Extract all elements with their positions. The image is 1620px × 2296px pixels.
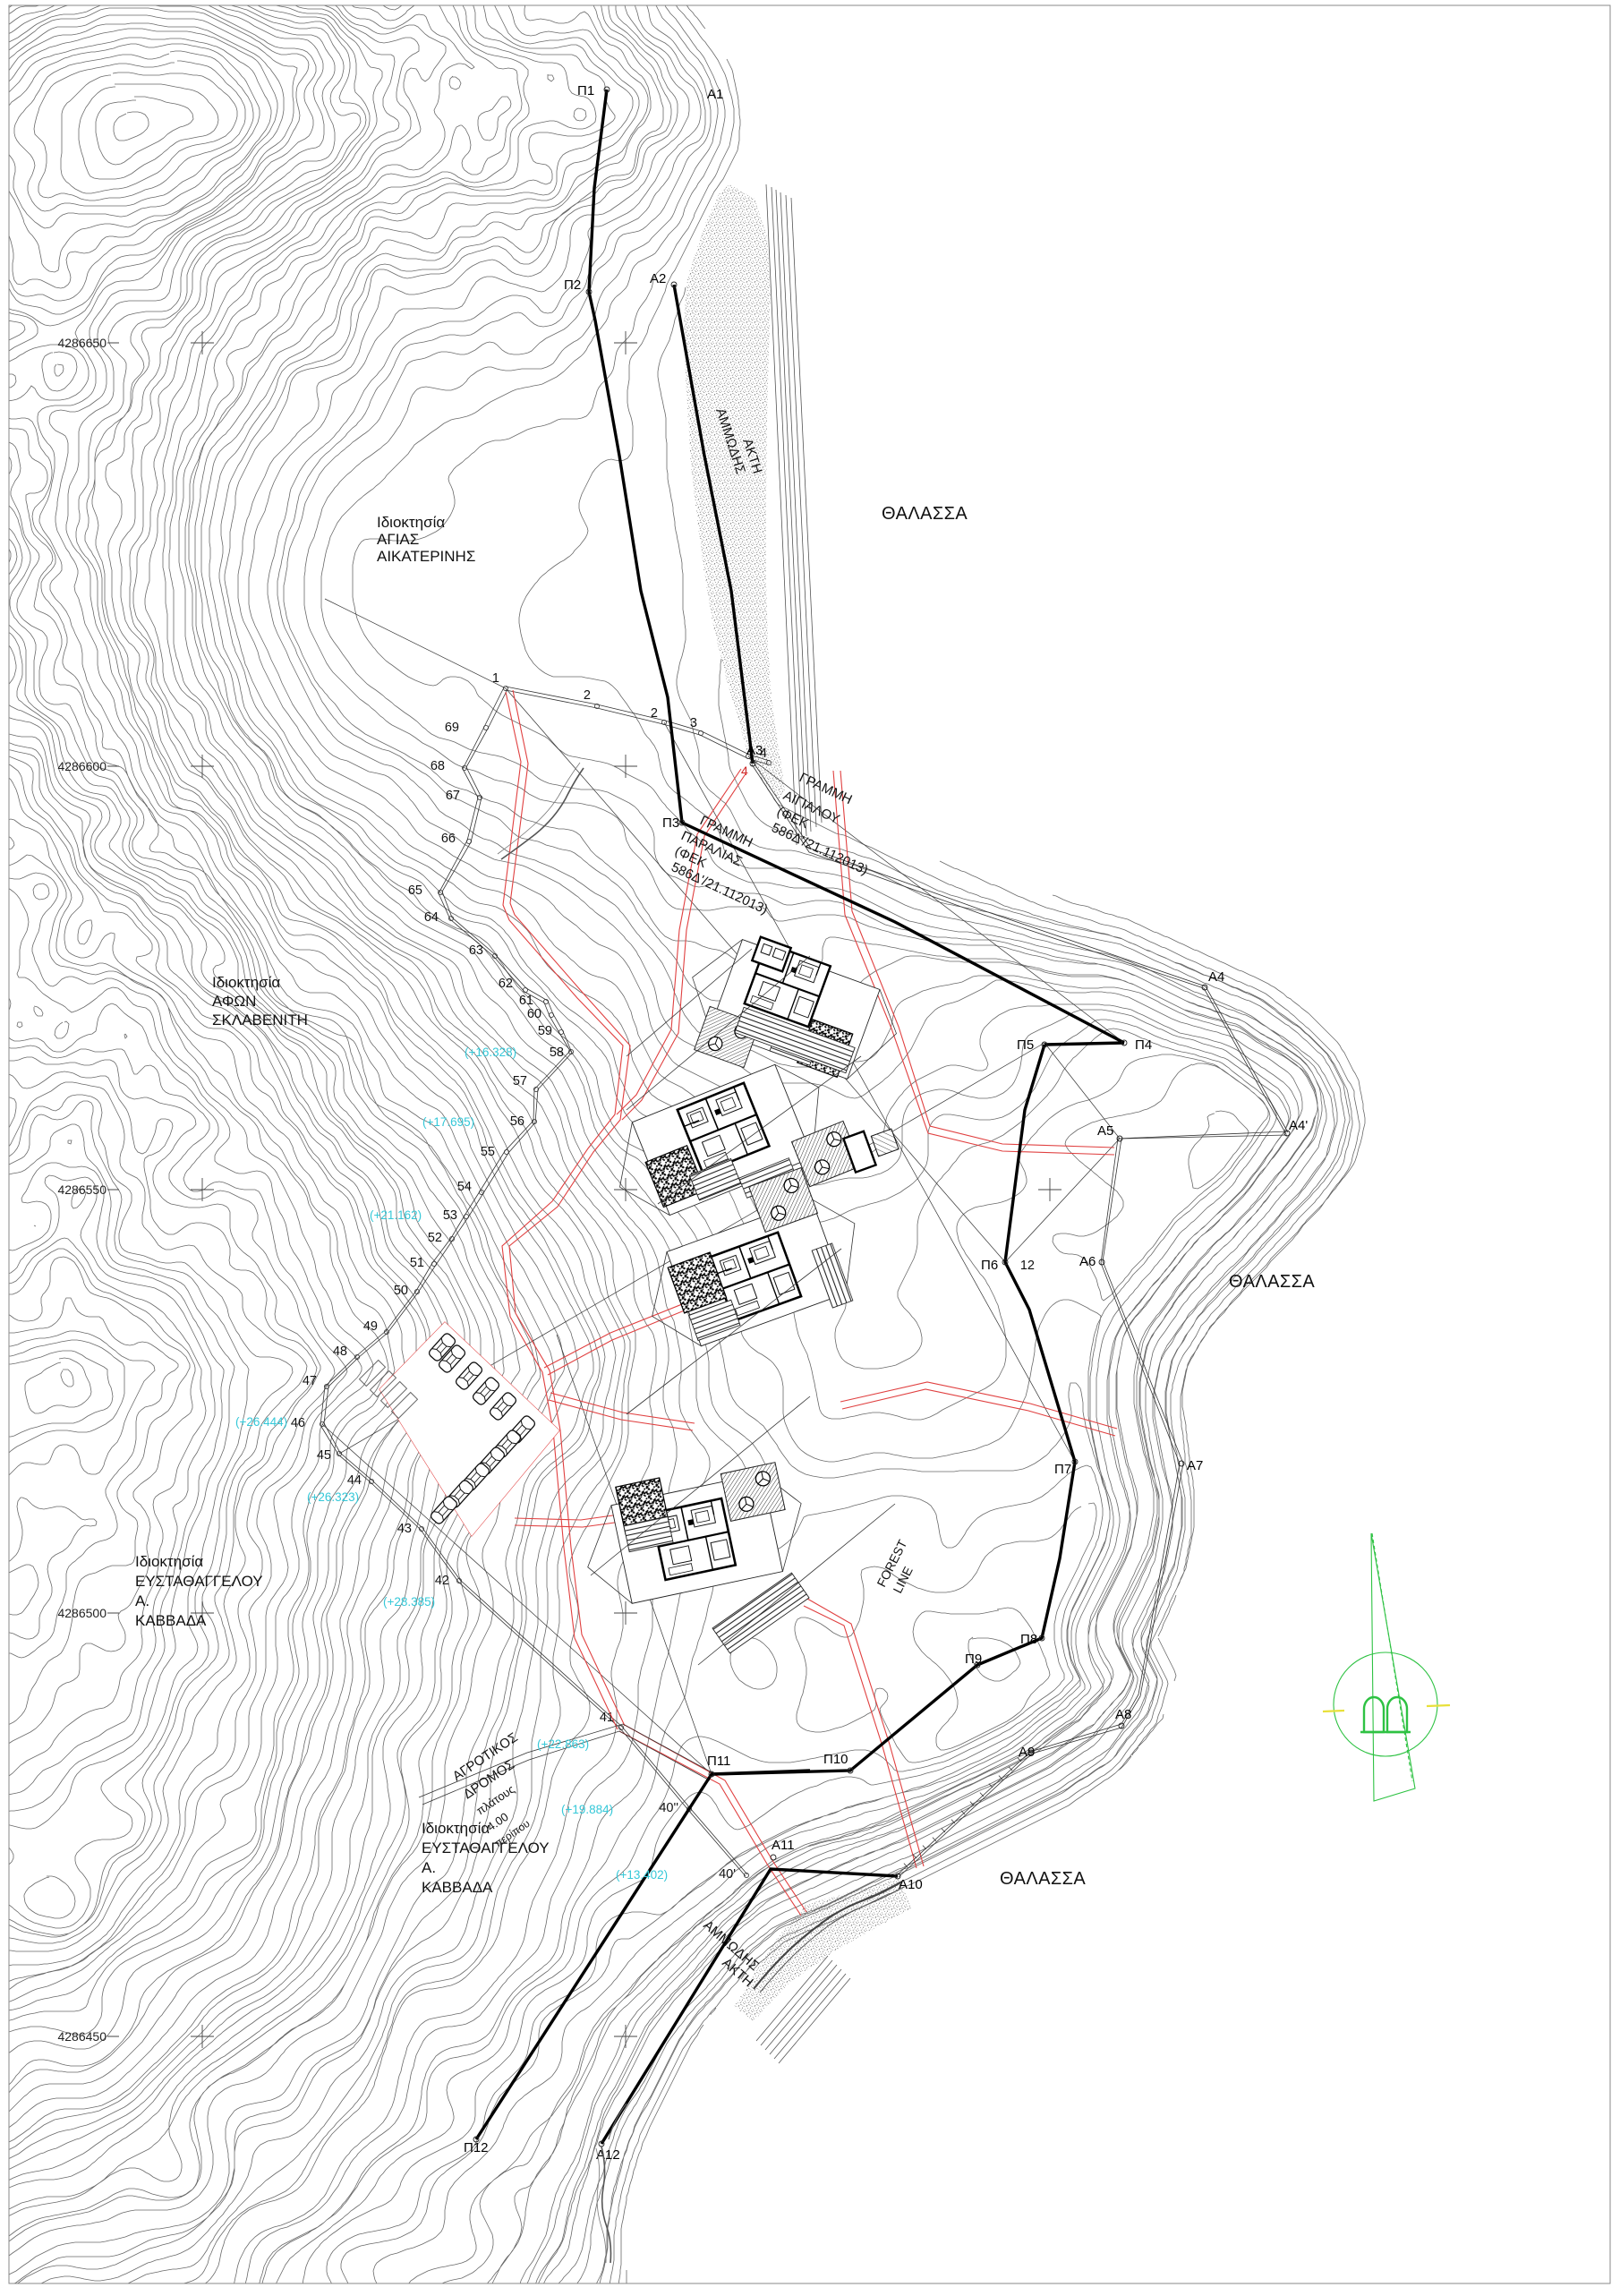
svg-text:60: 60 (527, 1007, 541, 1021)
svg-text:4286600: 4286600 (57, 759, 107, 773)
svg-text:Π8: Π8 (1020, 1632, 1037, 1647)
svg-text:ΕΥΣΤΑΘΑΓΓΕΛΟΥ: ΕΥΣΤΑΘΑΓΓΕΛΟΥ (135, 1573, 263, 1590)
svg-text:ΕΥΣΤΑΘΑΓΓΕΛΟΥ: ΕΥΣΤΑΘΑΓΓΕΛΟΥ (422, 1839, 550, 1856)
svg-text:Ιδιοκτησία: Ιδιοκτησία (422, 1820, 490, 1837)
svg-text:58: 58 (550, 1046, 564, 1060)
svg-text:4286500: 4286500 (57, 1606, 107, 1620)
svg-text:Π5: Π5 (1017, 1037, 1034, 1053)
svg-text:Α.: Α. (135, 1592, 149, 1609)
svg-text:4286650: 4286650 (57, 336, 107, 350)
svg-text:55: 55 (481, 1145, 495, 1159)
svg-text:Π1: Π1 (577, 83, 594, 98)
svg-text:A12: A12 (596, 2147, 620, 2163)
svg-text:(+21.162): (+21.162) (370, 1208, 422, 1222)
svg-text:(+17.695): (+17.695) (422, 1115, 474, 1129)
svg-text:Π2: Π2 (564, 277, 581, 293)
svg-text:12: 12 (1020, 1259, 1035, 1273)
svg-text:ΘΑΛΑΣΣΑ: ΘΑΛΑΣΣΑ (882, 504, 968, 524)
svg-text:44: 44 (347, 1473, 362, 1488)
svg-text:Π4: Π4 (1135, 1037, 1152, 1053)
svg-text:Π12: Π12 (464, 2140, 489, 2155)
svg-text:(+26.444): (+26.444) (235, 1415, 287, 1429)
svg-text:ΘΑΛΑΣΣΑ: ΘΑΛΑΣΣΑ (1000, 1869, 1086, 1889)
svg-text:A8: A8 (1115, 1707, 1131, 1722)
svg-text:(+26.323): (+26.323) (307, 1490, 359, 1504)
svg-text:Ιδιοκτησία: Ιδιοκτησία (377, 514, 445, 531)
svg-text:66: 66 (441, 832, 456, 846)
svg-text:(+16.328): (+16.328) (465, 1046, 516, 1059)
svg-text:ΑΦΩΝ: ΑΦΩΝ (212, 993, 256, 1010)
svg-text:Π9: Π9 (965, 1652, 982, 1667)
svg-text:A11: A11 (772, 1838, 795, 1853)
svg-text:40'': 40'' (659, 1801, 678, 1815)
svg-text:A7: A7 (1187, 1458, 1203, 1473)
svg-text:67: 67 (446, 789, 460, 803)
svg-text:56: 56 (510, 1114, 524, 1129)
svg-text:43: 43 (397, 1522, 412, 1536)
svg-text:40': 40' (719, 1867, 736, 1882)
svg-text:63: 63 (469, 943, 483, 958)
svg-text:A1: A1 (707, 87, 723, 102)
svg-text:A10: A10 (899, 1877, 923, 1892)
svg-text:ΑΓΙΑΣ: ΑΓΙΑΣ (377, 531, 419, 548)
svg-text:Ιδιοκτησία: Ιδιοκτησία (212, 974, 280, 991)
svg-text:Π7: Π7 (1054, 1462, 1071, 1477)
svg-text:(+22.863): (+22.863) (537, 1737, 589, 1751)
svg-text:50: 50 (394, 1284, 408, 1298)
svg-text:(+28.385): (+28.385) (383, 1595, 435, 1609)
svg-text:Ιδιοκτησία: Ιδιοκτησία (135, 1553, 203, 1570)
svg-text:48: 48 (333, 1344, 347, 1359)
svg-text:64: 64 (424, 910, 439, 925)
svg-text:(+13.402): (+13.402) (616, 1868, 668, 1882)
svg-text:54: 54 (457, 1180, 472, 1194)
svg-text:42: 42 (435, 1574, 449, 1588)
svg-text:49: 49 (363, 1319, 378, 1334)
svg-text:(+19.884): (+19.884) (561, 1803, 613, 1816)
svg-text:45: 45 (317, 1448, 331, 1463)
svg-text:65: 65 (408, 883, 422, 898)
svg-text:A5: A5 (1097, 1123, 1113, 1139)
svg-text:4286450: 4286450 (57, 2029, 107, 2044)
svg-text:ΣΚΛΑΒΕΝΙΤΗ: ΣΚΛΑΒΕΝΙΤΗ (212, 1011, 308, 1029)
svg-text:47: 47 (303, 1374, 317, 1388)
svg-text:A2: A2 (650, 271, 666, 286)
svg-text:ΘΑΛΑΣΣΑ: ΘΑΛΑΣΣΑ (1229, 1272, 1315, 1292)
svg-text:ΚΑΒΒΑΔΑ: ΚΑΒΒΑΔΑ (135, 1612, 207, 1629)
svg-text:A4: A4 (1208, 969, 1224, 985)
svg-text:A3: A3 (746, 743, 763, 758)
svg-text:3: 3 (690, 716, 697, 730)
svg-text:4286550: 4286550 (57, 1182, 107, 1197)
svg-text:68: 68 (431, 759, 445, 773)
svg-text:61: 61 (519, 994, 533, 1008)
svg-text:Π6: Π6 (981, 1258, 998, 1273)
svg-text:Π10: Π10 (823, 1752, 848, 1767)
svg-text:ΑΙΚΑΤΕΡΙΝΗΣ: ΑΙΚΑΤΕΡΙΝΗΣ (377, 548, 475, 565)
svg-text:57: 57 (513, 1074, 527, 1088)
svg-text:51: 51 (410, 1256, 424, 1270)
svg-text:A4': A4' (1289, 1118, 1308, 1133)
svg-text:69: 69 (445, 721, 459, 735)
svg-text:Π11: Π11 (707, 1754, 730, 1769)
svg-text:52: 52 (428, 1231, 442, 1245)
svg-text:A9: A9 (1019, 1745, 1035, 1760)
svg-text:59: 59 (538, 1024, 552, 1038)
svg-text:2: 2 (584, 688, 591, 703)
svg-text:Α.: Α. (422, 1859, 436, 1876)
svg-text:53: 53 (443, 1208, 457, 1223)
svg-text:2: 2 (651, 706, 658, 721)
svg-text:46: 46 (291, 1416, 305, 1430)
svg-text:Π3: Π3 (662, 815, 679, 831)
svg-text:1: 1 (492, 671, 499, 686)
svg-text:62: 62 (499, 977, 513, 991)
svg-text:ΚΑΒΒΑΔΑ: ΚΑΒΒΑΔΑ (422, 1879, 493, 1896)
svg-text:A6: A6 (1079, 1254, 1096, 1269)
